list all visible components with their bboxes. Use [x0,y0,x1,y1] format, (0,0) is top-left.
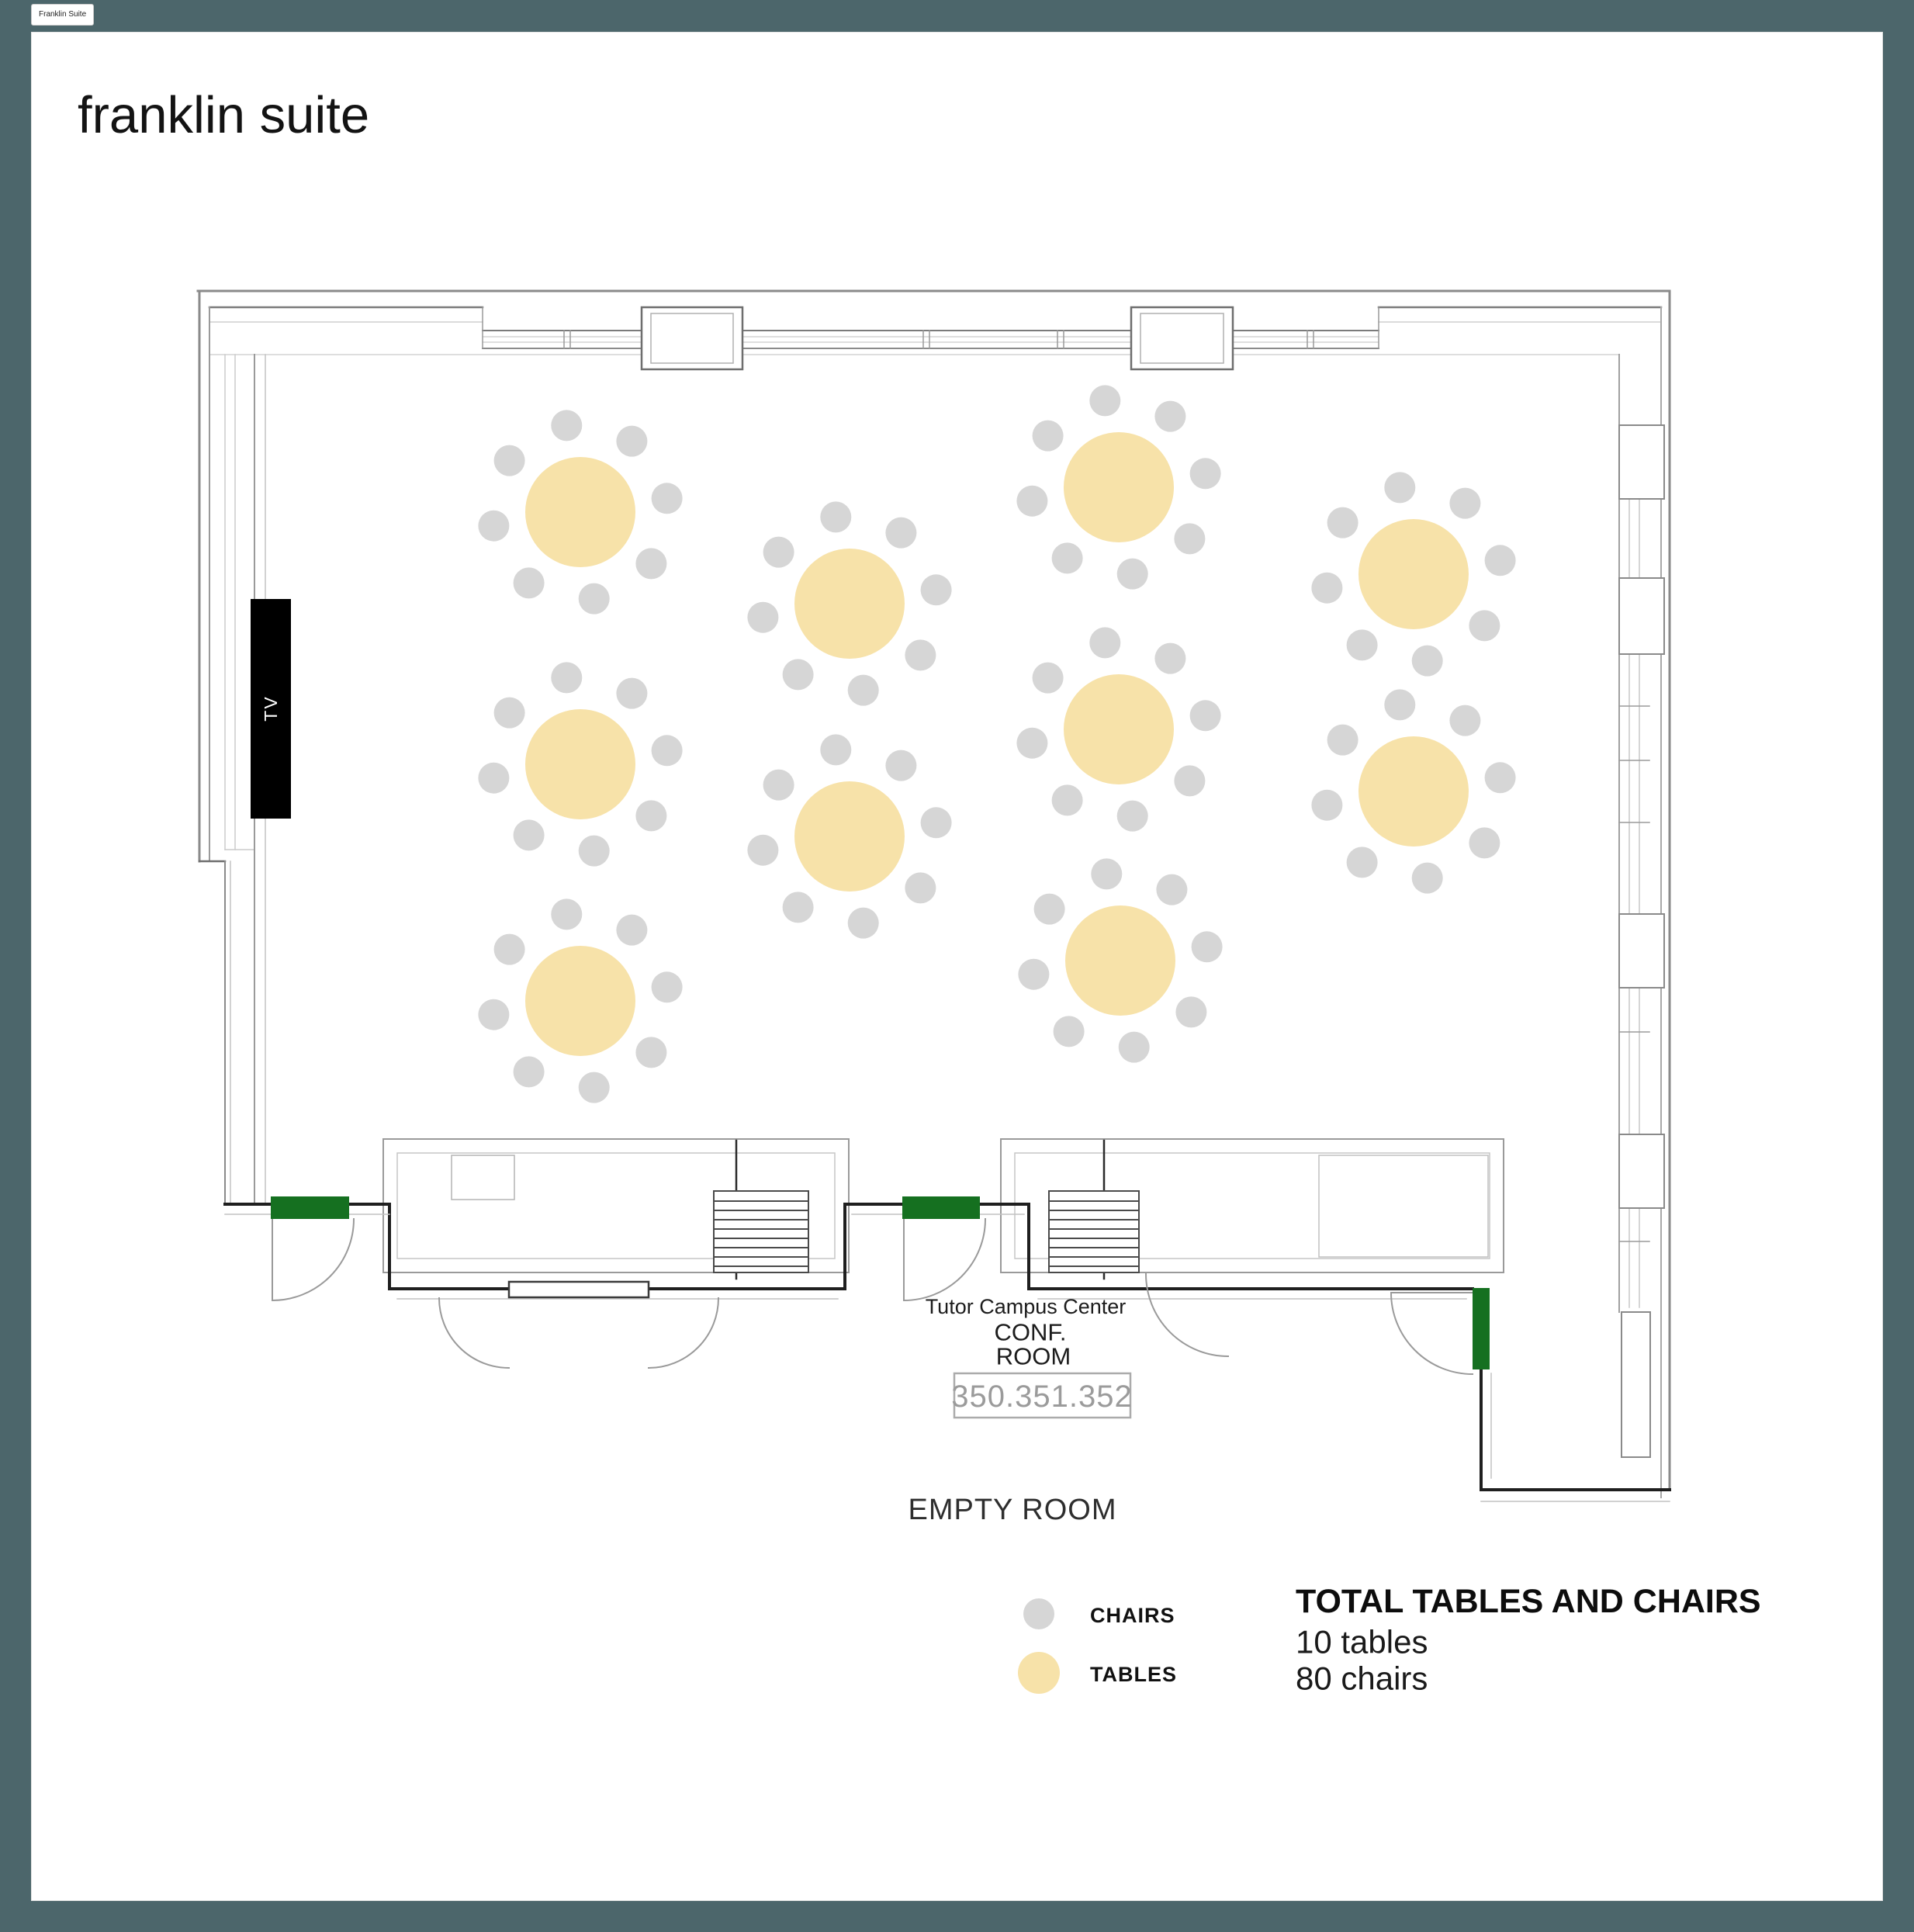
chair [551,410,582,441]
tab-franklin-suite[interactable]: Franklin Suite [31,4,94,26]
chair [1016,486,1047,517]
chair [551,662,582,693]
chair [1033,663,1064,694]
chair [1412,863,1443,894]
chair [1119,1032,1150,1063]
chair [1311,573,1342,604]
chair [820,501,851,532]
chair [1052,784,1083,815]
table [1358,736,1469,847]
walls-layer [198,291,1670,1501]
chair [1033,421,1064,452]
chair [478,511,509,542]
chair [1449,705,1480,736]
legend-table-swatch [1018,1652,1060,1694]
page: { "tab": { "label": "Franklin Suite" }, … [0,0,1914,1932]
chair [747,835,778,866]
door-marker [271,1196,349,1219]
chair [1016,728,1047,759]
chair [478,999,509,1030]
chair [1311,790,1342,821]
chair [1054,1016,1085,1047]
totals-tables-line: 10 tables [1296,1624,1428,1660]
chair [1154,401,1185,432]
chair [616,915,647,946]
door-marker [1473,1288,1490,1369]
chair [1117,801,1148,832]
chair [652,483,683,514]
chair [616,426,647,457]
floor-plan: TV Tutor Campus Center CONF. ROOM 350.35… [0,0,1914,1932]
chair [579,583,610,615]
chair [1449,488,1480,519]
chair [514,819,545,850]
stair-run [714,1191,808,1272]
chair [635,548,666,579]
chair [1412,646,1443,677]
chair [1384,472,1415,503]
chair [763,770,794,801]
chair [579,1072,610,1103]
table [525,946,635,1056]
chair [1327,507,1358,538]
chair [494,934,525,965]
tv-label: TV [261,695,281,721]
totals-chairs-line: 80 chairs [1296,1660,1428,1697]
totals-heading: TOTAL TABLES AND CHAIRS [1296,1583,1761,1620]
chair [1154,643,1185,674]
chair [1327,725,1358,756]
chair [820,734,851,765]
chair [1175,996,1206,1027]
chair [763,537,794,568]
legend-chairs-label: CHAIRS [1090,1604,1175,1627]
chair [1089,627,1120,658]
legend-chair-swatch [1023,1598,1054,1629]
chair [1469,610,1500,641]
chair [848,675,879,706]
chair [1052,542,1083,573]
table [525,709,635,819]
chair [1156,874,1187,905]
chair [1034,894,1065,925]
chair [921,807,952,838]
table [1358,519,1469,629]
chair [905,872,936,903]
table [794,549,905,659]
chair [1469,827,1500,858]
chair [1347,847,1378,878]
chair [905,639,936,670]
chair [635,800,666,831]
chair [1190,458,1221,489]
chair [1117,559,1148,590]
chair [783,892,814,923]
legend-tables-label: TABLES [1090,1663,1177,1686]
chair [1192,931,1223,962]
seating-layer [478,385,1515,1103]
chair [885,518,916,549]
chair [848,908,879,939]
chair [1174,523,1205,554]
venue-label: Tutor Campus Center [926,1295,1127,1318]
chair [514,1056,545,1087]
chair [1485,545,1516,576]
table [525,457,635,567]
chair [1347,629,1378,660]
table [1065,905,1175,1016]
chair [885,750,916,781]
chair [1089,385,1120,416]
table [1064,432,1174,542]
chair [1485,762,1516,793]
chair [494,445,525,476]
conf-label: CONF. [995,1319,1067,1346]
table [1064,674,1174,784]
chair [1018,959,1049,990]
room-number-label: 350.351.352 [951,1380,1132,1414]
room-label: ROOM [996,1343,1071,1370]
empty-room-label: EMPTY ROOM [909,1494,1117,1526]
chair [652,971,683,1002]
legend: CHAIRS TABLES [1018,1598,1177,1694]
chair [478,763,509,794]
chair [1190,700,1221,731]
door-marker [902,1196,980,1219]
chair [514,567,545,598]
table [794,781,905,892]
chair [652,735,683,766]
chair [1174,765,1205,796]
chair [494,698,525,729]
chair [616,678,647,709]
chair [1384,689,1415,720]
chair [551,898,582,930]
chair [783,659,814,690]
chair [635,1037,666,1068]
stair-run [1049,1191,1139,1272]
chair [747,602,778,633]
chair [579,836,610,867]
chair [1091,858,1122,889]
totals: TOTAL TABLES AND CHAIRS 10 tables 80 cha… [1296,1583,1761,1697]
chair [921,574,952,605]
